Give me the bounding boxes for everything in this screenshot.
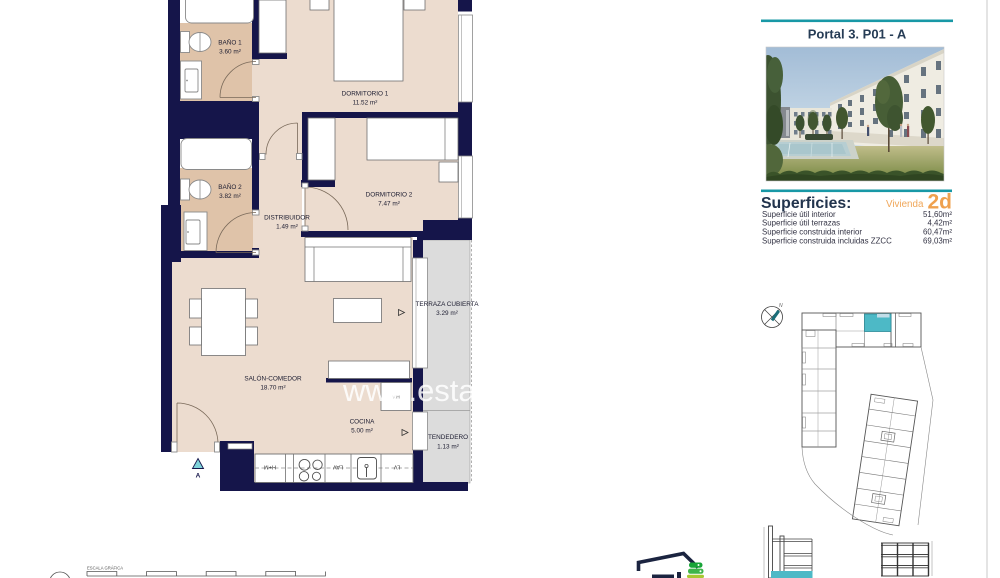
svg-text:60,47m²: 60,47m²	[923, 228, 952, 237]
svg-text:Superficie útil interior: Superficie útil interior	[762, 210, 836, 219]
svg-text:3.82 m²: 3.82 m²	[219, 193, 241, 200]
svg-text:N: N	[779, 303, 783, 309]
svg-text:11.52 m²: 11.52 m²	[353, 100, 378, 107]
svg-text:Superficie construida interior: Superficie construida interior	[762, 228, 862, 237]
svg-text:BAÑO 2: BAÑO 2	[218, 182, 242, 191]
svg-text:LAV: LAV	[333, 464, 343, 470]
svg-text:ESCALA GRÁFICA: ESCALA GRÁFICA	[87, 566, 123, 571]
svg-text:51,60m²: 51,60m²	[923, 210, 952, 219]
svg-text:SALÓN-COMEDOR: SALÓN-COMEDOR	[244, 374, 302, 383]
svg-text:DORMITORIO 2: DORMITORIO 2	[366, 192, 413, 199]
svg-text:4,42m²: 4,42m²	[927, 219, 952, 228]
svg-text:BAÑO 1: BAÑO 1	[218, 38, 242, 47]
svg-text:Superficie construida incluida: Superficie construida incluidas ZZCC	[762, 237, 892, 246]
svg-text:3.29 m²: 3.29 m²	[436, 310, 458, 317]
svg-text:DISTRIBUIDOR: DISTRIBUIDOR	[264, 215, 310, 222]
svg-text:3.60 m²: 3.60 m²	[219, 49, 241, 56]
svg-text:69,03m²: 69,03m²	[923, 237, 952, 246]
svg-text:DORMITORIO 1: DORMITORIO 1	[342, 91, 389, 98]
svg-text:LV: LV	[394, 464, 401, 470]
svg-text:Superficie útil terrazas: Superficie útil terrazas	[762, 219, 840, 228]
svg-text:H+M: H+M	[264, 464, 276, 470]
svg-text:Portal 3. P01 - A: Portal 3. P01 - A	[808, 27, 907, 42]
svg-text:Vivienda: Vivienda	[886, 199, 924, 210]
svg-text:TENDEDERO: TENDEDERO	[428, 434, 468, 441]
svg-text:TERRAZA CUBIERTA: TERRAZA CUBIERTA	[416, 301, 480, 308]
svg-text:COCINA: COCINA	[350, 419, 376, 426]
svg-text:7.47 m²: 7.47 m²	[378, 201, 400, 208]
svg-text:18.70 m²: 18.70 m²	[260, 385, 285, 392]
svg-text:A: A	[196, 473, 201, 480]
svg-text:1.13 m²: 1.13 m²	[437, 444, 459, 451]
svg-text:www.estal: www.estal	[342, 373, 483, 408]
svg-text:1.49 m²: 1.49 m²	[276, 224, 298, 231]
svg-text:5.00 m²: 5.00 m²	[351, 428, 373, 435]
